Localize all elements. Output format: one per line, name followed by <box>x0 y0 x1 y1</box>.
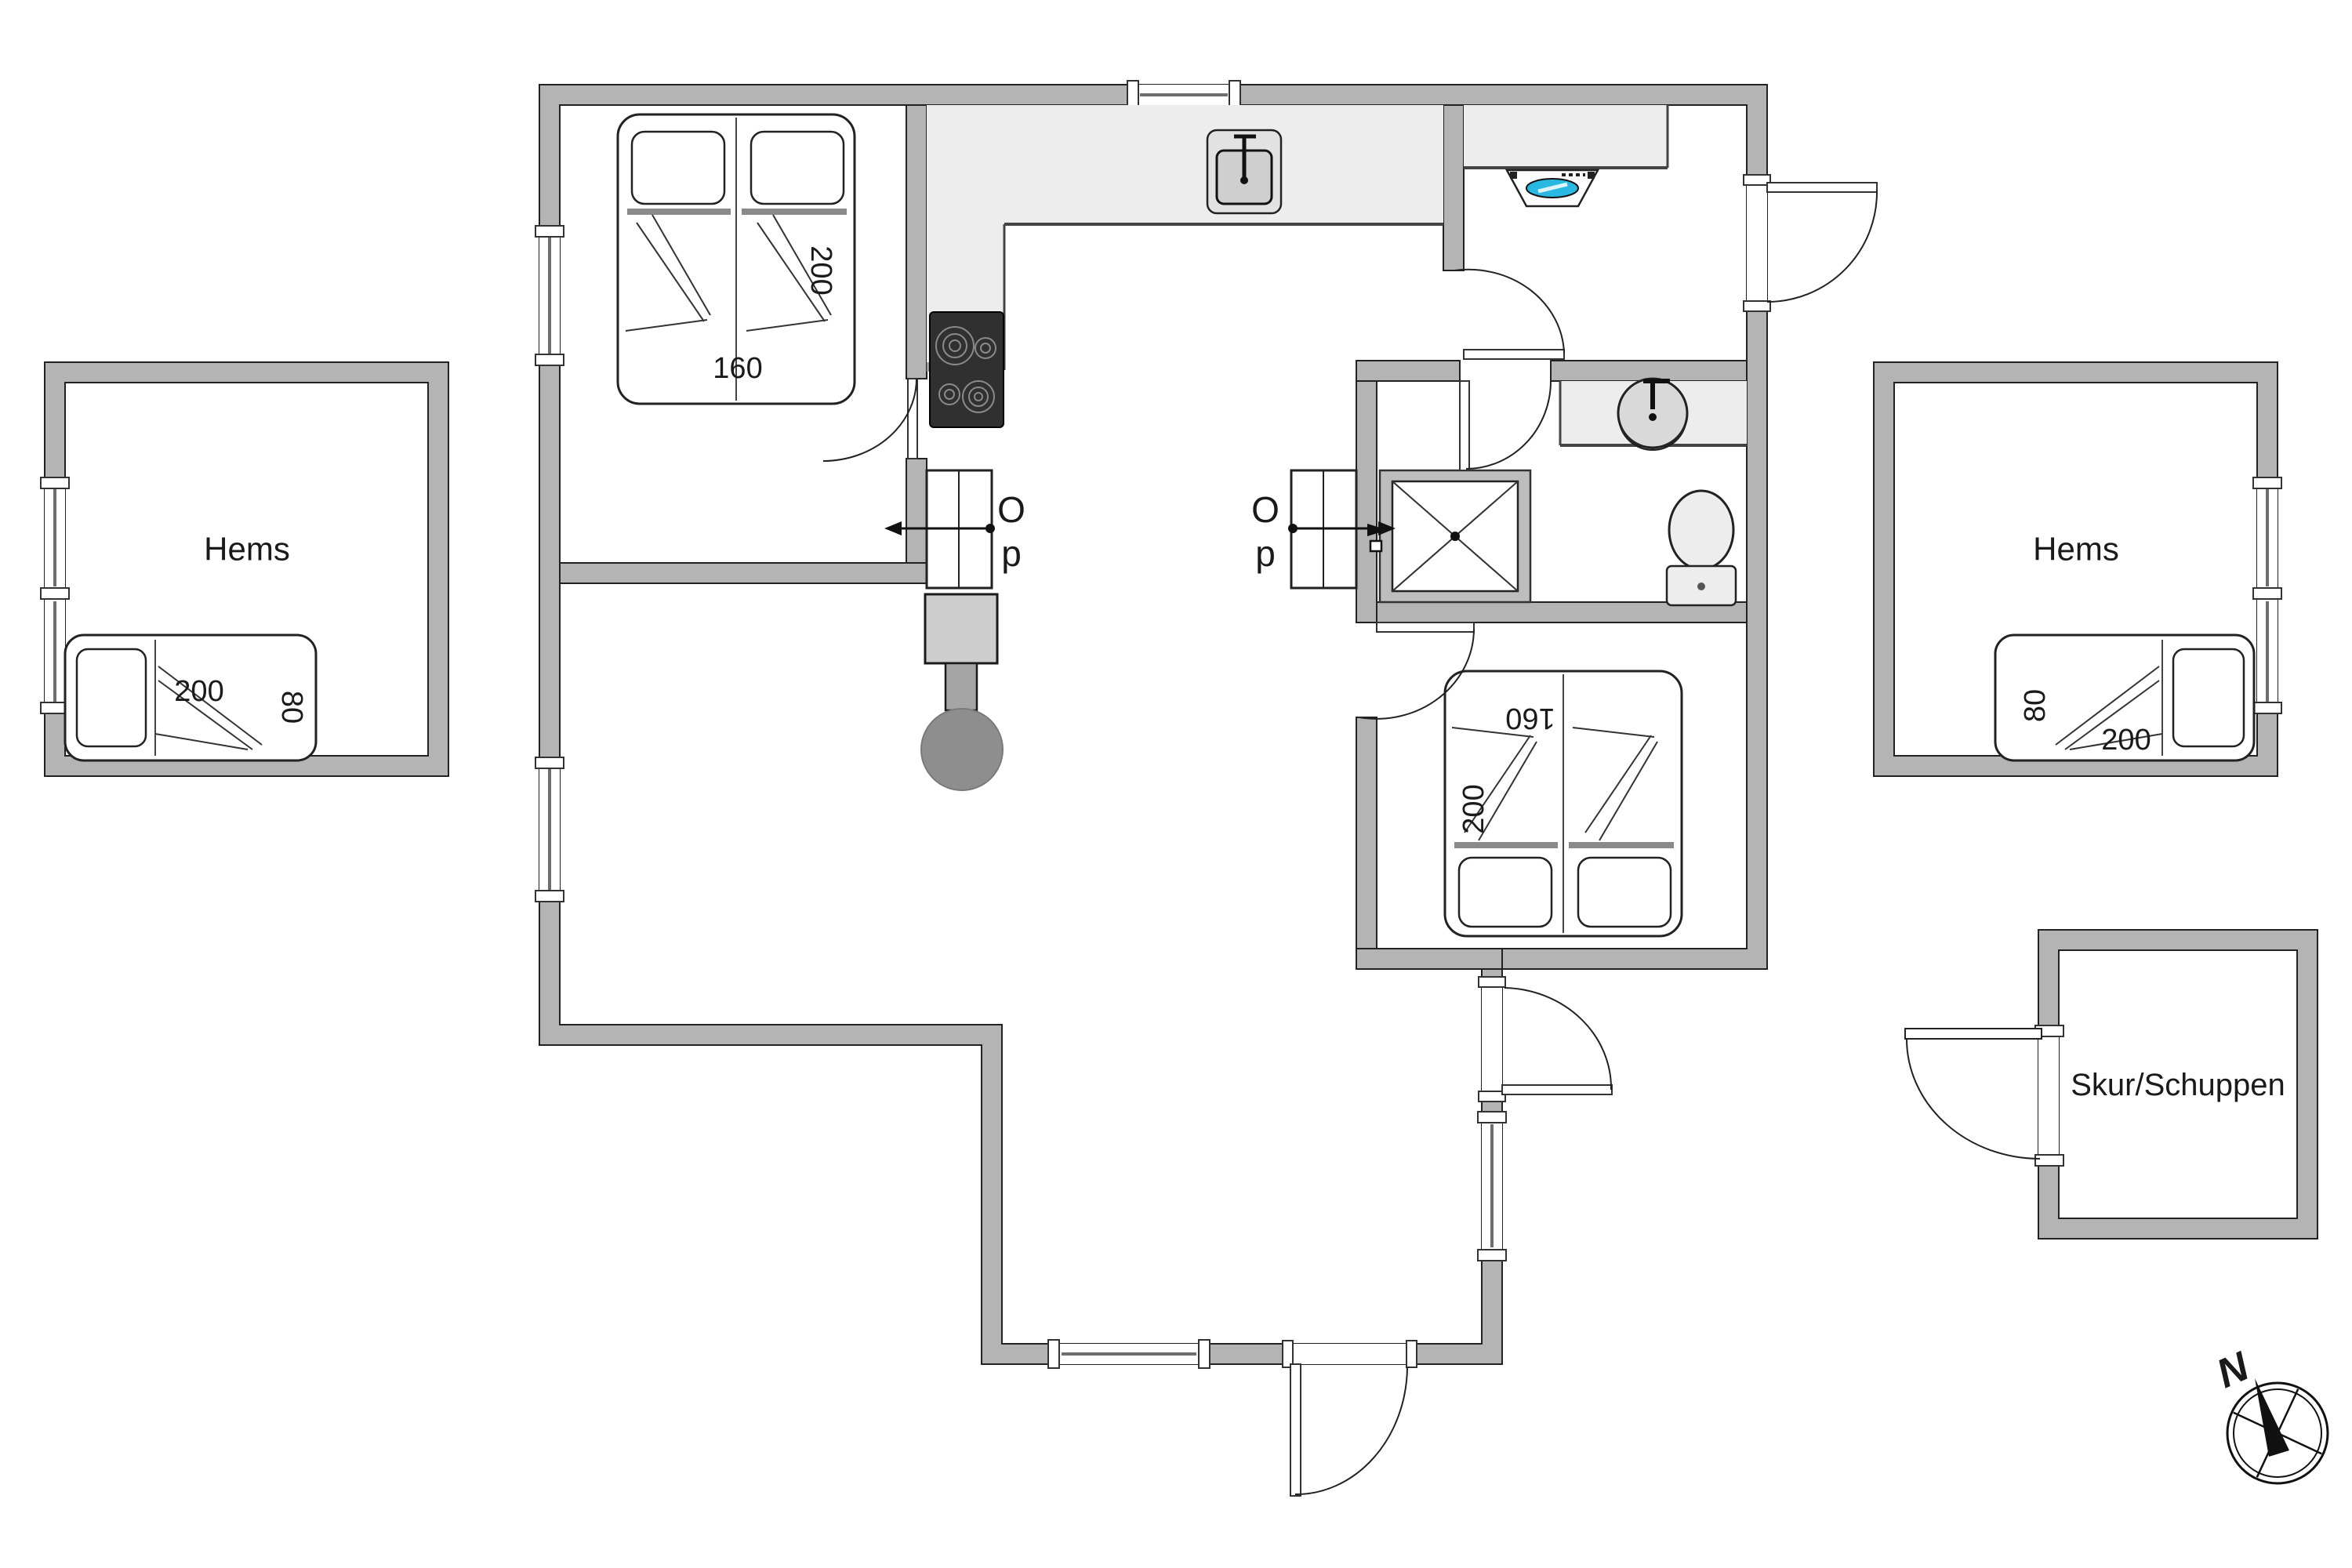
toilet <box>1667 491 1736 605</box>
bedroom2-door-leaf <box>1377 622 1474 632</box>
door-jamb <box>1744 175 1770 185</box>
hems-right-bed-width: 80 <box>2019 689 2052 722</box>
utility-counter <box>1464 105 1668 168</box>
utility-exterior-door-leaf <box>1767 183 1877 192</box>
hems-right-windows <box>2253 477 2281 713</box>
window-connector <box>535 757 564 768</box>
shed-door-leaf <box>1905 1029 2042 1039</box>
bedroom1-bed-width: 160 <box>713 352 762 385</box>
shower <box>1367 470 1530 602</box>
living-divider-upper <box>1356 381 1377 622</box>
living-divider-lower <box>1356 717 1377 969</box>
window-connector <box>1229 81 1240 109</box>
shed-label: Skur/Schuppen <box>2071 1068 2285 1102</box>
kitchen-utility-wall <box>1443 105 1464 270</box>
bedroom2-bed-length: 200 <box>1457 784 1490 833</box>
stove-cooktop <box>930 312 1004 427</box>
stair-left-label-p: p <box>1001 533 1022 574</box>
window-connector <box>2253 702 2281 713</box>
pillow <box>2173 649 2244 746</box>
bedroom1-south-wall <box>560 563 927 583</box>
east-exterior-door-leaf <box>1502 1085 1612 1094</box>
hems-right-label: Hems <box>2033 531 2119 568</box>
pillow <box>1459 858 1552 927</box>
window-connector <box>41 588 69 599</box>
bedroom2-south-wall-left <box>1356 949 1502 969</box>
floor-plan-page: Hems 200 80 Hems 80 200 <box>0 0 2352 1568</box>
bathroom-door-leaf <box>1460 381 1469 470</box>
window-connector <box>1199 1340 1210 1368</box>
stair-right-label-o: O <box>1251 489 1279 530</box>
pillow <box>1578 858 1671 927</box>
floor-plan-canvas: Hems 200 80 Hems 80 200 <box>0 0 2352 1568</box>
stair-right-label-p: p <box>1255 533 1276 574</box>
door-jamb <box>1479 1091 1505 1102</box>
hems-left-bed-width: 80 <box>275 691 308 724</box>
bedroom1-east-wall-upper <box>906 105 927 379</box>
door-jamb <box>1283 1341 1293 1367</box>
hems-right-bed-length: 200 <box>2101 724 2151 757</box>
window-connector <box>41 477 69 488</box>
shed-door-opening <box>2038 1035 2059 1156</box>
window-connector <box>1048 1340 1059 1368</box>
window-connector <box>2253 588 2281 599</box>
window-connector <box>535 226 564 237</box>
door-jamb <box>2035 1155 2063 1166</box>
background <box>0 0 2352 1568</box>
hems-left-bed-length: 200 <box>174 675 223 708</box>
door-jamb <box>1479 977 1505 987</box>
bedroom1-bed-length: 200 <box>804 245 837 295</box>
hems-left-label: Hems <box>204 531 290 568</box>
window-connector <box>1478 1250 1506 1261</box>
terrace-door-leaf <box>1290 1364 1301 1496</box>
washbasin <box>1618 379 1687 450</box>
pillow <box>751 132 844 204</box>
pillow <box>632 132 724 204</box>
window-connector <box>535 354 564 365</box>
bathroom-north-wall-left <box>1356 361 1460 381</box>
door-jamb <box>1406 1341 1417 1367</box>
door-jamb <box>1744 301 1770 311</box>
bedroom2-bed-width: 160 <box>1505 702 1555 735</box>
kitchen-sink <box>1207 130 1281 213</box>
window-connector <box>535 891 564 902</box>
pillow <box>77 649 146 746</box>
window-connector <box>2253 477 2281 488</box>
window-connector <box>1127 81 1138 109</box>
window-connector <box>1478 1112 1506 1123</box>
stair-left-label-o: O <box>997 489 1025 530</box>
utility-door-leaf <box>1464 350 1564 359</box>
